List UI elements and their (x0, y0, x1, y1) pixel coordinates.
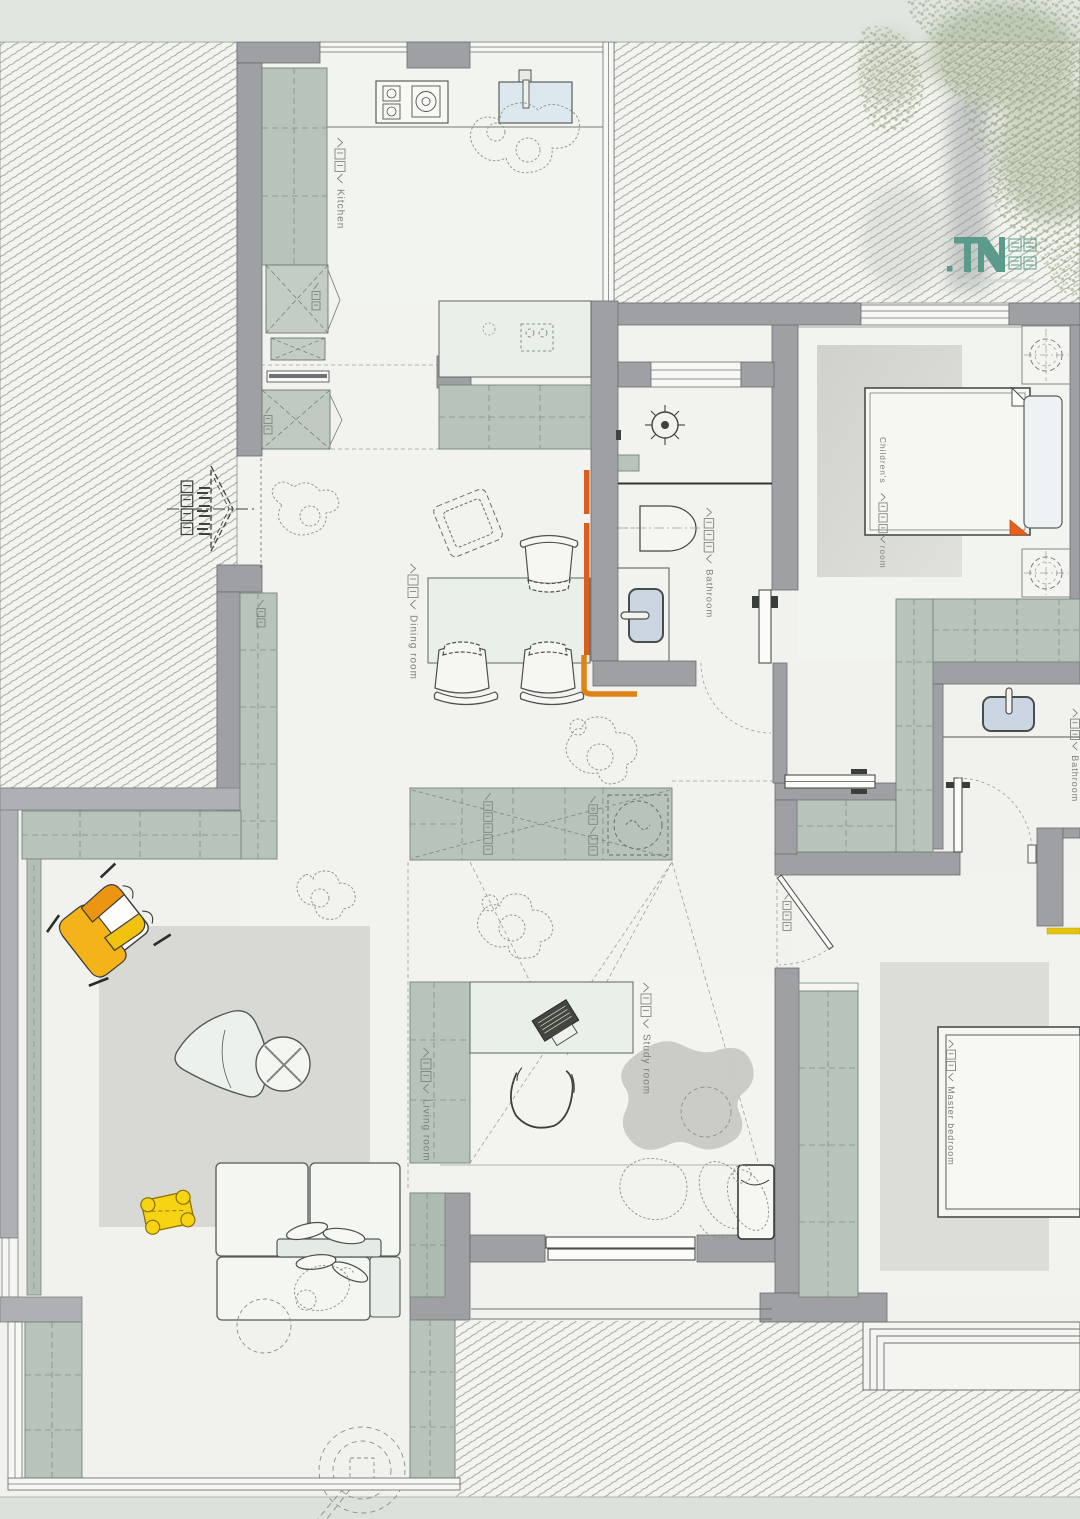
svg-text:Study room: Study room (641, 1034, 652, 1095)
svg-text:Master bedroom: Master bedroom (946, 1086, 956, 1166)
svg-text:Dining room: Dining room (408, 615, 419, 680)
svg-text:Kitchen: Kitchen (335, 189, 346, 229)
svg-text:Bathroom: Bathroom (1070, 755, 1080, 802)
svg-text:Children's: Children's (878, 437, 888, 484)
svg-text:room: room (878, 546, 888, 569)
svg-text:Bathroom: Bathroom (704, 569, 715, 618)
svg-text:Living room: Living room (421, 1099, 432, 1162)
